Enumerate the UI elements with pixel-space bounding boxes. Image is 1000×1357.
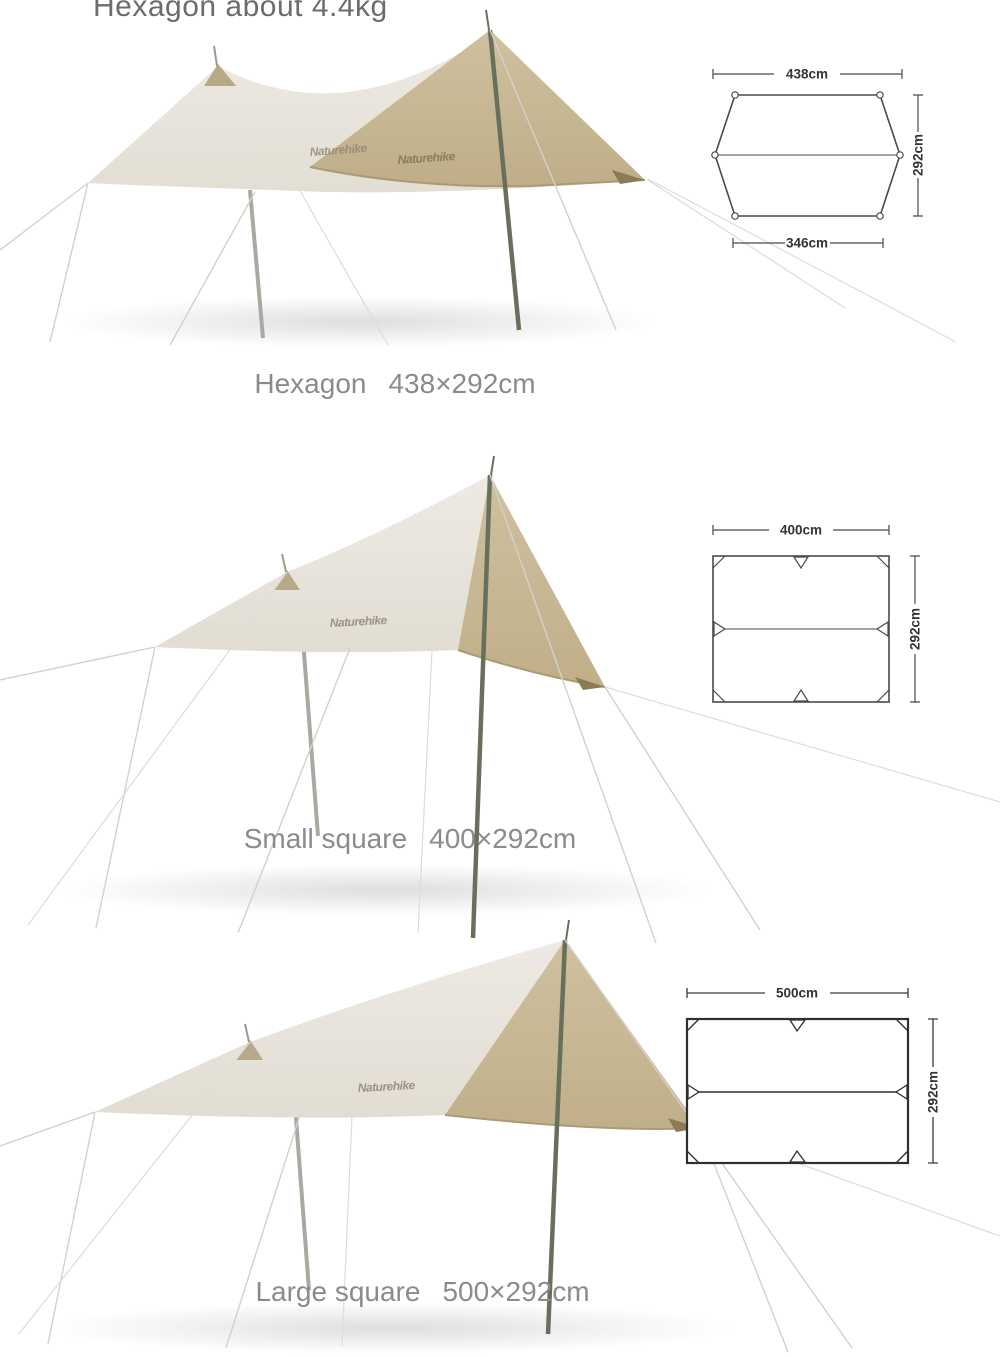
main-pole-tip (491, 456, 494, 475)
guy-line (0, 647, 155, 680)
front-pole (303, 640, 318, 836)
bottom-width-label: 346cm (786, 236, 828, 251)
variant-name: Large square (255, 1276, 420, 1307)
small-square-caption: Small square400×292cm (0, 823, 820, 855)
top-width-dimension: 438cm (713, 67, 902, 82)
top-width-label: 438cm (786, 67, 828, 82)
small-square-dimension-diagram: 400cm 292cm (690, 500, 930, 715)
front-pole (295, 1105, 309, 1290)
product-spec-page: Hexagon about 4.4kg (0, 0, 1000, 1357)
ground-shadow (45, 1302, 735, 1354)
height-label: 292cm (926, 1071, 941, 1113)
large-square-caption: Large square500×292cm (0, 1276, 845, 1308)
peak-tip (214, 46, 217, 66)
ground-shadow (55, 864, 715, 916)
top-width-label: 400cm (780, 523, 822, 538)
tarp-canopy-panel (155, 475, 490, 652)
variant-name: Small square (244, 823, 407, 854)
variant-size: 400×292cm (429, 823, 576, 854)
guy-line (48, 1112, 95, 1344)
main-pole-tip (566, 920, 569, 940)
height-dimension: 292cm (908, 556, 923, 702)
hexagon-caption: Hexagon438×292cm (0, 368, 790, 400)
variant-size: 438×292cm (388, 368, 535, 399)
variant-size: 500×292cm (442, 1276, 589, 1307)
variant-name: Hexagon (254, 368, 366, 399)
height-label: 292cm (908, 608, 923, 650)
rectangle-outline (687, 1019, 908, 1163)
ground-shadow (60, 296, 660, 348)
guy-line (0, 1112, 95, 1146)
peak-tip (282, 554, 286, 572)
height-label: 292cm (911, 134, 926, 176)
top-width-label: 500cm (776, 986, 818, 1001)
bottom-width-dimension: 346cm (733, 236, 883, 251)
peak-tip (245, 1024, 249, 1042)
top-width-dimension: 400cm (713, 523, 889, 538)
height-dimension: 292cm (926, 1019, 941, 1163)
hexagon-dimension-diagram: 438cm 292cm 346cm (690, 50, 940, 260)
front-pole-tip (486, 10, 489, 30)
height-dimension: 292cm (911, 95, 926, 216)
large-square-dimension-diagram: 500cm 292cm (670, 960, 955, 1175)
top-width-dimension: 500cm (687, 986, 908, 1001)
